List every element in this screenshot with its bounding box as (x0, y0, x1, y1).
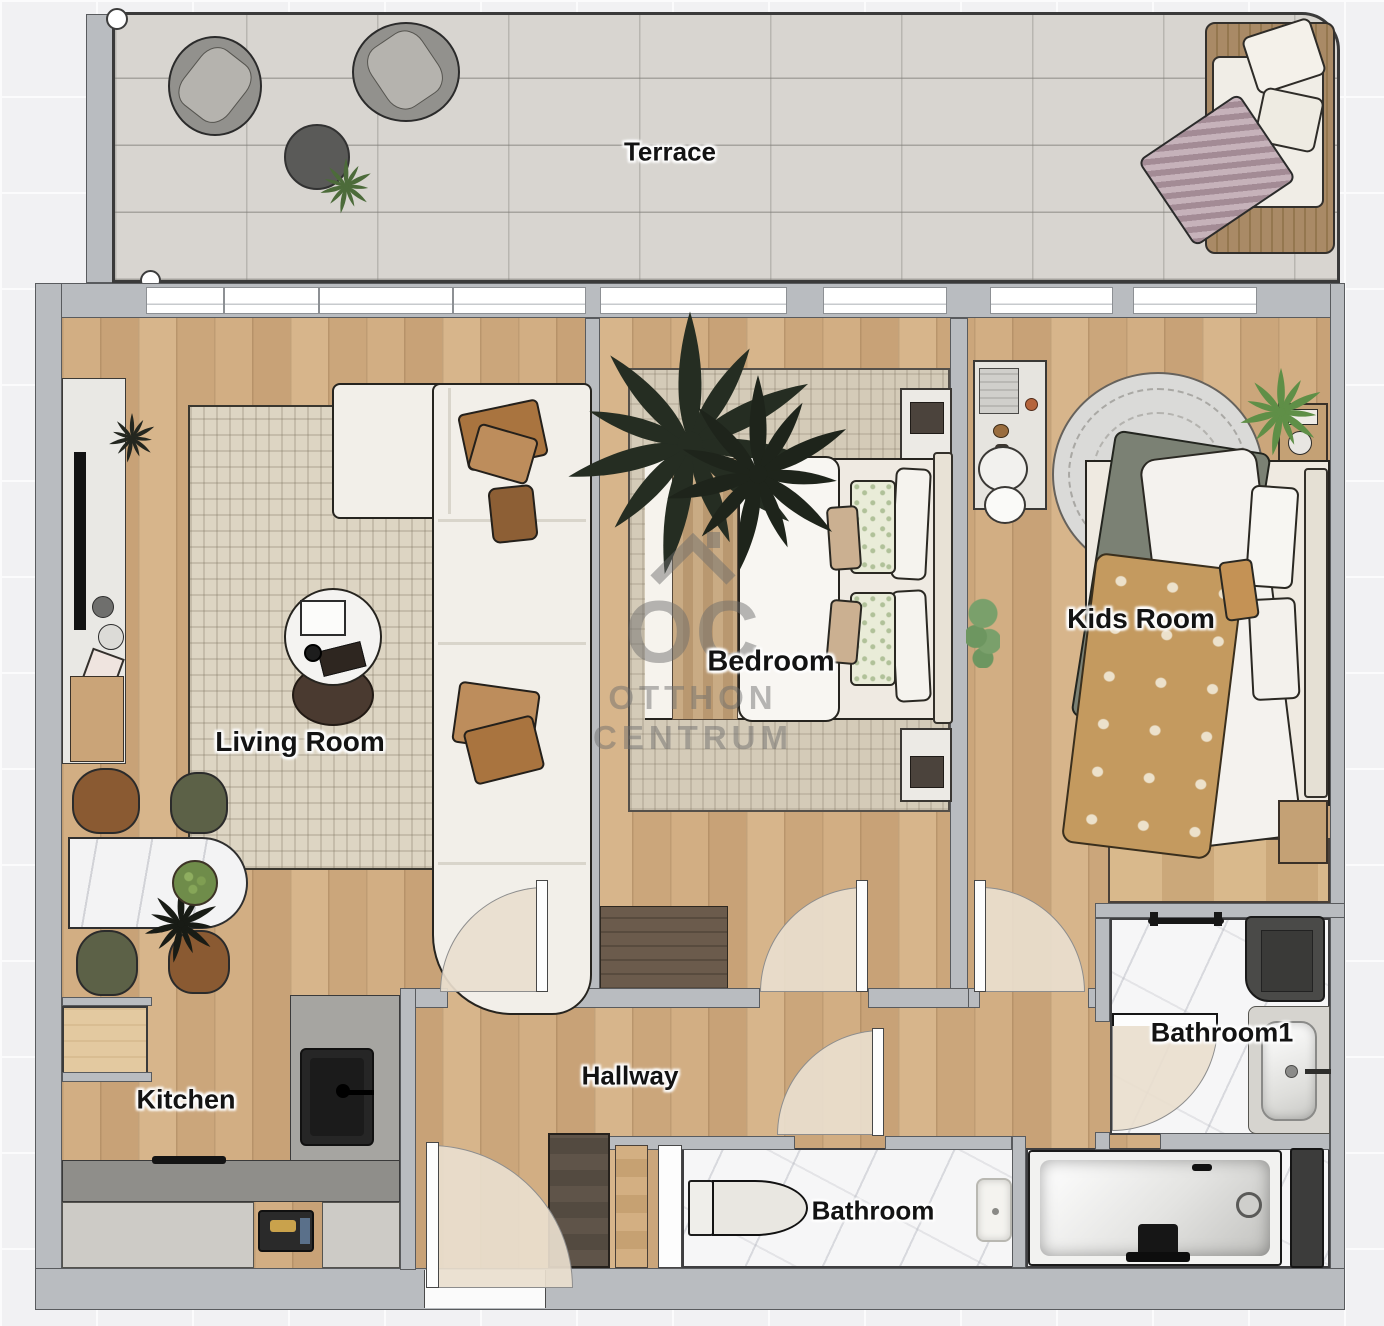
coffee-machine (258, 1210, 314, 1252)
sofa-seam (438, 642, 586, 645)
table-plant-icon (98, 842, 182, 924)
kids-bed-headboard (1304, 468, 1328, 798)
toilet-tank (688, 1180, 714, 1236)
vanity-faucet-icon (1305, 1069, 1331, 1074)
bed-accent-pillow (826, 505, 862, 571)
bed-headboard (933, 452, 953, 724)
nightstand (900, 388, 952, 462)
decor-plant-icon (80, 386, 132, 438)
window-divider (318, 287, 320, 314)
towel-rail-icon (1214, 912, 1222, 926)
sink-drain-icon (992, 1208, 999, 1215)
tv-cabinet (70, 676, 124, 762)
kids-room-window (1133, 287, 1257, 314)
desk-vase (993, 424, 1009, 438)
bathtub-drain-icon (1236, 1192, 1262, 1218)
watermark-line1: OTTHON (593, 678, 793, 718)
room-label-kitchen: Kitchen (136, 1085, 235, 1116)
bathtub-faucet-icon (1126, 1252, 1190, 1262)
desk-printer (979, 368, 1019, 414)
bathroom-sink (976, 1178, 1012, 1242)
dining-chair (170, 772, 228, 834)
nightstand (900, 728, 952, 802)
room-label-bathroom: Bathroom (812, 1196, 935, 1227)
sink-basin (310, 1058, 364, 1136)
bottom-wall (35, 1268, 1345, 1310)
chair-cushion (171, 40, 260, 131)
washing-machine-door (1261, 930, 1313, 992)
bathroom1-left-wall (1095, 918, 1110, 1022)
terrace-left-wall (86, 14, 114, 283)
dining-chair (76, 930, 138, 996)
kitchen-counter (62, 1160, 400, 1202)
room-label-hallway: Hallway (582, 1061, 679, 1092)
bathtub (1028, 1150, 1282, 1266)
bathroom-door-leaf (872, 1028, 884, 1136)
right-wall (1330, 283, 1345, 1310)
open-door-leaf (658, 1145, 682, 1268)
dining-chair (72, 768, 140, 834)
sofa-side-stool (487, 484, 539, 545)
room-label-terrace: Terrace (624, 137, 716, 168)
hallway-wall (868, 988, 978, 1008)
bedroom-entry-mat (600, 906, 728, 990)
niche-wall (62, 1072, 152, 1082)
vanity-faucet-icon (1285, 1065, 1298, 1078)
potted-plant-icon (288, 128, 346, 186)
floor-plan: OC OTTHON CENTRUM Terrace Living Room Be… (0, 0, 1384, 1326)
kids-room-window (990, 287, 1113, 314)
plant-icon (1182, 320, 1288, 412)
watermark-house-icon (647, 528, 739, 586)
nightstand-tray (910, 402, 944, 434)
window-divider (223, 287, 225, 314)
fruit-bowl (172, 860, 218, 906)
bathroom1-left-wall (1095, 1132, 1110, 1150)
niche-wall (62, 997, 152, 1006)
tv-screen (74, 452, 86, 630)
entry-door-leaf (426, 1142, 439, 1288)
kitchen-side-table (62, 1006, 148, 1074)
door-leaf (856, 880, 868, 992)
palm-plant-icon (540, 268, 770, 474)
kitchen-entry-wall (400, 988, 416, 1270)
coffee-cup (304, 644, 322, 662)
sink-faucet-icon (336, 1084, 350, 1098)
kitchen-sink (300, 1048, 374, 1146)
towel-rail-icon (1150, 912, 1158, 926)
desk-chair-seat (984, 486, 1026, 524)
coffee-machine-detail (300, 1218, 310, 1244)
bed-pillow (890, 467, 932, 581)
coffee-machine-detail (270, 1220, 296, 1232)
room-label-bedroom: Bedroom (707, 646, 834, 679)
decor-object (98, 624, 124, 650)
nightstand-tray (910, 756, 944, 788)
cactus-plant (966, 598, 1000, 668)
bathroom-front-wall (885, 1136, 1012, 1150)
bathroom-side-wall (1012, 1136, 1026, 1268)
door-leaf (536, 880, 548, 992)
desk-mug (1025, 398, 1038, 411)
kids-nightstand (1278, 800, 1328, 864)
watermark-line2: CENTRUM (593, 718, 793, 758)
chair-cushion (359, 23, 451, 117)
left-wall (35, 283, 62, 1310)
coffee-table-tray (300, 600, 346, 636)
watermark: OC OTTHON CENTRUM (593, 528, 793, 758)
entry-shelf (615, 1145, 648, 1268)
towel-rail-icon (1148, 918, 1224, 924)
bedroom-window (823, 287, 947, 314)
kitchen-cabinets (62, 1202, 400, 1268)
room-label-bathroom1: Bathroom1 (1151, 1018, 1294, 1049)
decor-object (92, 596, 114, 618)
sofa-seam (438, 862, 586, 865)
terrace-chair (168, 36, 262, 136)
radiator (1290, 1148, 1324, 1268)
stove-handle (152, 1156, 226, 1164)
room-label-kids-room: Kids Room (1067, 603, 1215, 635)
corner-pin-icon (106, 8, 128, 30)
bed-pillow (890, 589, 932, 703)
washing-machine (1245, 916, 1325, 1002)
door-leaf (974, 880, 986, 992)
bathtub-overflow-icon (1192, 1164, 1212, 1171)
room-label-living-room: Living Room (215, 726, 385, 758)
terrace-chair (352, 22, 460, 122)
